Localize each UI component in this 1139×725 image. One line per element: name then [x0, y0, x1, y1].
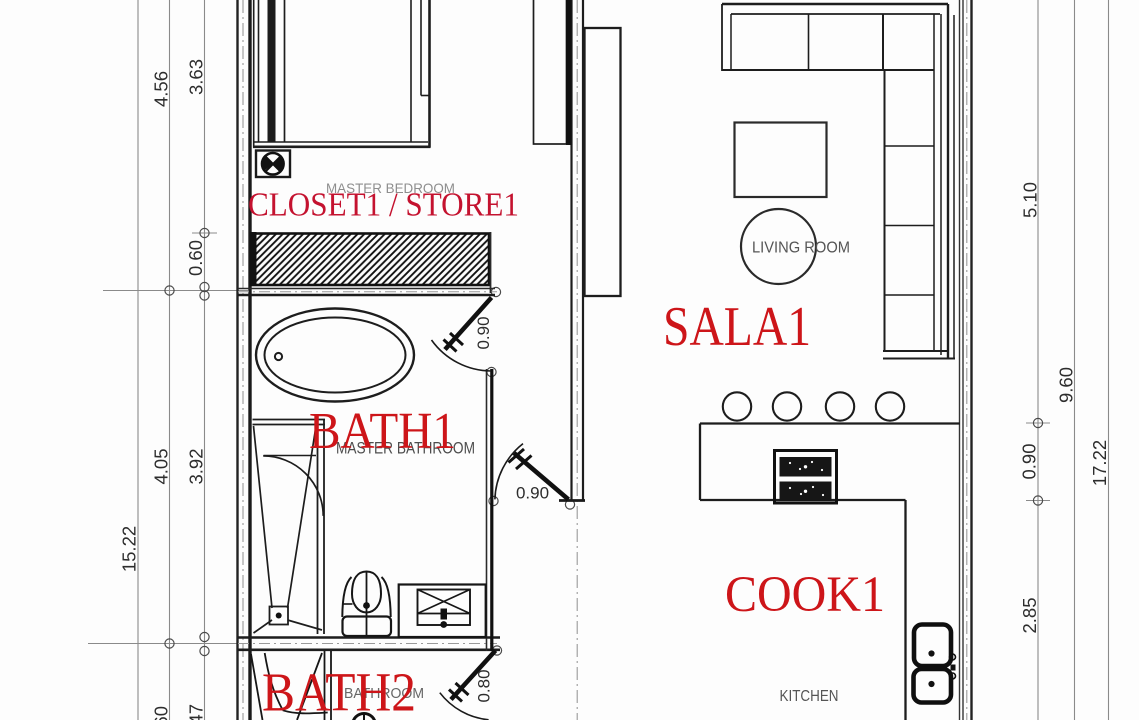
svg-text:0.90: 0.90 [516, 484, 549, 503]
svg-text:1.47: 1.47 [186, 704, 207, 720]
svg-text:BATH1: BATH1 [309, 403, 456, 460]
svg-text:0.80: 0.80 [475, 669, 494, 702]
svg-text:9.60: 9.60 [1056, 367, 1077, 403]
svg-text:5.10: 5.10 [1020, 182, 1041, 218]
svg-text:CLOSET1 / STORE1: CLOSET1 / STORE1 [248, 187, 519, 224]
svg-text:1.60: 1.60 [151, 706, 172, 720]
svg-text:LIVING ROOM: LIVING ROOM [752, 240, 850, 257]
svg-text:4.05: 4.05 [151, 448, 172, 484]
svg-text:0.90: 0.90 [474, 316, 493, 349]
svg-text:2.85: 2.85 [1019, 597, 1040, 633]
svg-text:0.90: 0.90 [1019, 443, 1040, 479]
svg-text:KITCHEN: KITCHEN [780, 688, 839, 705]
svg-text:0.60: 0.60 [185, 240, 206, 276]
svg-text:SALA1: SALA1 [663, 296, 811, 358]
svg-text:BATH2: BATH2 [262, 662, 416, 721]
svg-text:3.63: 3.63 [186, 59, 207, 95]
svg-text:17.22: 17.22 [1089, 440, 1110, 486]
svg-text:4.56: 4.56 [151, 71, 172, 107]
svg-text:3.92: 3.92 [186, 448, 207, 484]
svg-text:15.22: 15.22 [119, 526, 140, 572]
svg-text:COOK1: COOK1 [725, 567, 885, 623]
